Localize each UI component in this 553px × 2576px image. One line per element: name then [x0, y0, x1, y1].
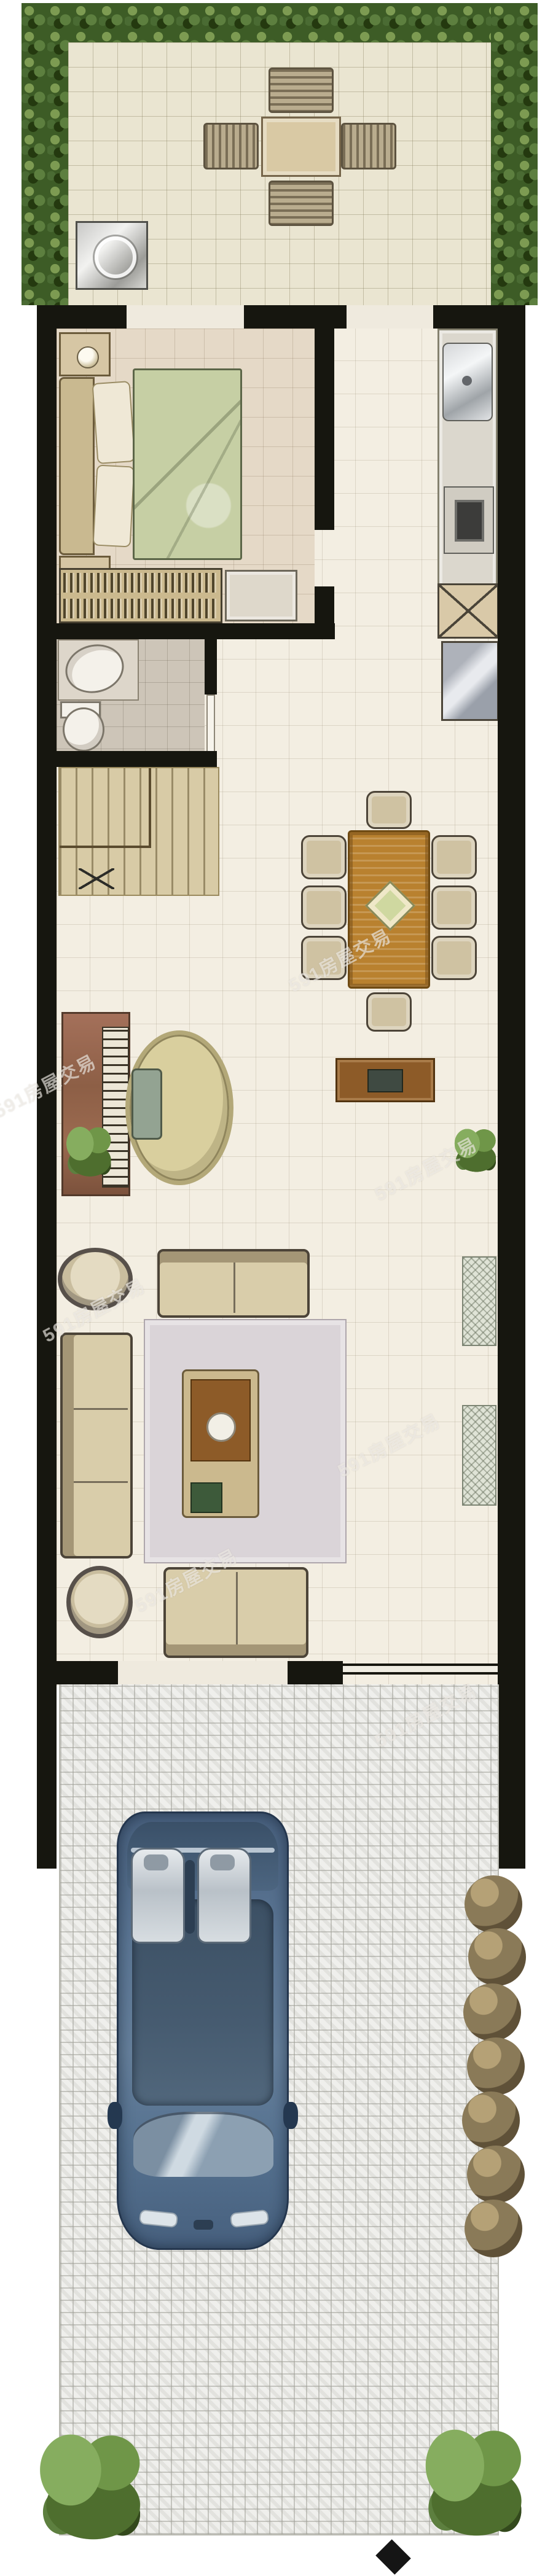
cooktop: [444, 486, 494, 554]
headrest: [210, 1854, 235, 1870]
floor-plan-canvas: 591房屋交易 591房屋交易 591房屋交易 591房屋交易 591房屋交易 …: [0, 0, 553, 2576]
dining-chair: [301, 936, 347, 980]
hedge-left: [22, 3, 68, 305]
potted-plant: [452, 1126, 499, 1174]
piano-bench: [131, 1068, 162, 1140]
car-seat-right: [197, 1848, 251, 1944]
cushion-seam: [74, 1408, 128, 1410]
window-lattice: [462, 1405, 496, 1506]
wall-top-middle: [244, 305, 347, 329]
shrub: [465, 1875, 522, 1933]
shrub-row: [462, 1875, 526, 2259]
dining-chair: [366, 791, 412, 829]
patio-chair-right: [341, 123, 396, 169]
window-lattice: [462, 1256, 496, 1346]
patio-door-threshold-right: [347, 305, 433, 329]
diamond-marker: [375, 2539, 411, 2575]
wall-front-right: [288, 1661, 343, 1684]
patio-chair-top: [269, 68, 334, 113]
patio-table: [261, 117, 341, 177]
car-mirror-left: [108, 2102, 122, 2129]
pillow: [92, 381, 135, 464]
hanging-clothes: [63, 573, 218, 593]
grill-unit: [76, 221, 148, 290]
double-bed-duvet: [133, 368, 242, 560]
faucet-icon: [462, 376, 472, 386]
sofa-two-seat-top: [157, 1249, 310, 1318]
wall-front-left: [57, 1661, 118, 1684]
nightstand-top: [59, 332, 111, 376]
car-headlight-left: [139, 2209, 178, 2228]
wall-bathroom-right: [205, 639, 217, 695]
car-mirror-right: [283, 2102, 298, 2129]
cooktop-burners: [455, 500, 484, 542]
shrub: [463, 1983, 521, 2041]
wardrobe: [59, 568, 222, 623]
planter-box: [190, 1482, 222, 1513]
shrub: [465, 2200, 522, 2257]
potted-plant: [64, 1124, 114, 1179]
shrub: [468, 1928, 526, 1986]
wall-bathroom-bottom: [57, 751, 217, 767]
bed-headboard: [59, 377, 95, 555]
wall-bedroom-divider-lower: [315, 586, 334, 625]
toilet-bowl: [63, 707, 104, 752]
round-armchair: [66, 1566, 133, 1638]
pillow: [93, 464, 135, 547]
headrest: [144, 1854, 168, 1870]
patio-chair-bottom: [269, 181, 334, 226]
front-window: [343, 1664, 498, 1675]
car-top-view: [117, 1811, 289, 2250]
storage-unit-crossed: [437, 583, 499, 639]
car-center-console: [185, 1860, 195, 1934]
hedge-top: [22, 3, 538, 42]
kitchen-sink: [442, 343, 493, 421]
plate: [206, 1412, 236, 1442]
dining-chair: [431, 936, 477, 980]
hedge-right: [491, 3, 538, 305]
wall-bedroom-bottom: [57, 623, 335, 639]
dining-chair: [431, 835, 477, 879]
car-headlight-right: [230, 2209, 269, 2228]
bush-right: [420, 2423, 528, 2541]
patio-door-threshold-left: [127, 305, 244, 329]
sofa-three-seat-left: [60, 1333, 133, 1558]
refrigerator: [441, 641, 499, 721]
round-armchair: [58, 1248, 133, 1310]
car-grille: [194, 2220, 213, 2230]
shrub: [467, 2037, 525, 2095]
bathroom-door: [206, 695, 215, 757]
dining-chair: [301, 885, 347, 930]
hanging-clothes: [63, 599, 218, 618]
car-seat-left: [131, 1848, 185, 1944]
shrub: [462, 2092, 520, 2149]
stairs-cross-marker: [79, 868, 114, 889]
patio-chair-left: [203, 123, 259, 169]
lamp-icon: [77, 346, 99, 368]
banister: [149, 768, 151, 847]
banister: [60, 846, 151, 848]
cushion-seam: [233, 1263, 235, 1313]
cushion-seam: [74, 1481, 128, 1483]
shrub: [467, 2146, 525, 2203]
grill-swirl-icon: [95, 236, 136, 278]
entrance-threshold: [118, 1661, 288, 1684]
bush-left: [34, 2428, 147, 2545]
sofa-two-seat-bottom: [163, 1567, 308, 1658]
wall-left: [37, 305, 57, 1869]
dining-chair: [431, 885, 477, 930]
dresser: [225, 570, 297, 621]
wall-right: [498, 305, 525, 1869]
dining-chair: [366, 992, 412, 1032]
dining-chair: [301, 835, 347, 879]
sideboard-decor: [367, 1069, 403, 1092]
cushion-seam: [236, 1572, 238, 1644]
wall-bedroom-divider-upper: [315, 327, 334, 530]
car-windshield: [133, 2112, 273, 2177]
